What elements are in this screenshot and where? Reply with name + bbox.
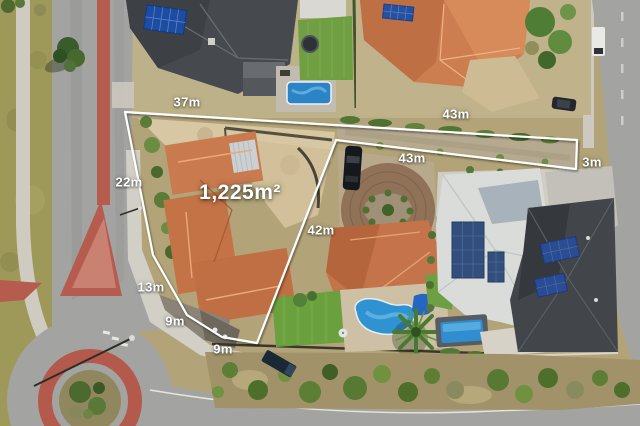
driveway-crossover bbox=[112, 82, 134, 108]
pool-north bbox=[287, 82, 331, 104]
lap-pool bbox=[435, 314, 489, 348]
trampoline bbox=[302, 36, 318, 52]
aerial-property-photo: 37m 43m 43m 3m 22m 42m 13m 9m 9m 1,225m² bbox=[0, 0, 640, 426]
scrub-reserve bbox=[205, 349, 640, 410]
solar-panels-ne bbox=[383, 4, 414, 21]
aerial-scene bbox=[0, 0, 640, 426]
white-van bbox=[592, 27, 605, 56]
palm-tree bbox=[392, 310, 438, 356]
hedge-divider bbox=[354, 0, 356, 108]
solar-panels-nw bbox=[144, 5, 187, 34]
black-suv bbox=[342, 145, 362, 190]
shed-white bbox=[300, 0, 346, 18]
